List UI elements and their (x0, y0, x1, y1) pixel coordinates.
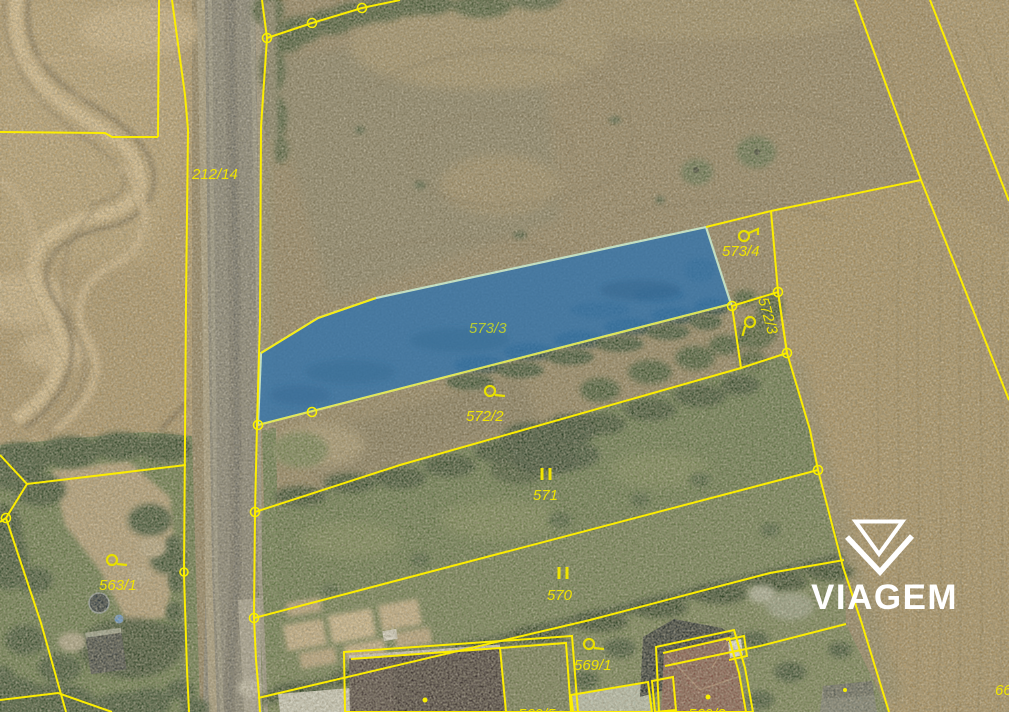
svg-text:573/3: 573/3 (469, 320, 507, 337)
svg-text:212/14: 212/14 (191, 166, 238, 183)
svg-text:VIAGEM: VIAGEM (811, 578, 958, 617)
svg-text:563/1: 563/1 (99, 577, 137, 594)
svg-text:569/2: 569/2 (688, 706, 726, 712)
svg-text:571: 571 (533, 487, 558, 504)
svg-text:572/2: 572/2 (466, 408, 504, 425)
svg-text:570: 570 (547, 587, 573, 604)
svg-text:573/4: 573/4 (722, 243, 760, 260)
svg-text:569/5: 569/5 (518, 706, 556, 712)
svg-text:569/1: 569/1 (574, 657, 612, 674)
svg-text:667: 667 (995, 682, 1009, 699)
